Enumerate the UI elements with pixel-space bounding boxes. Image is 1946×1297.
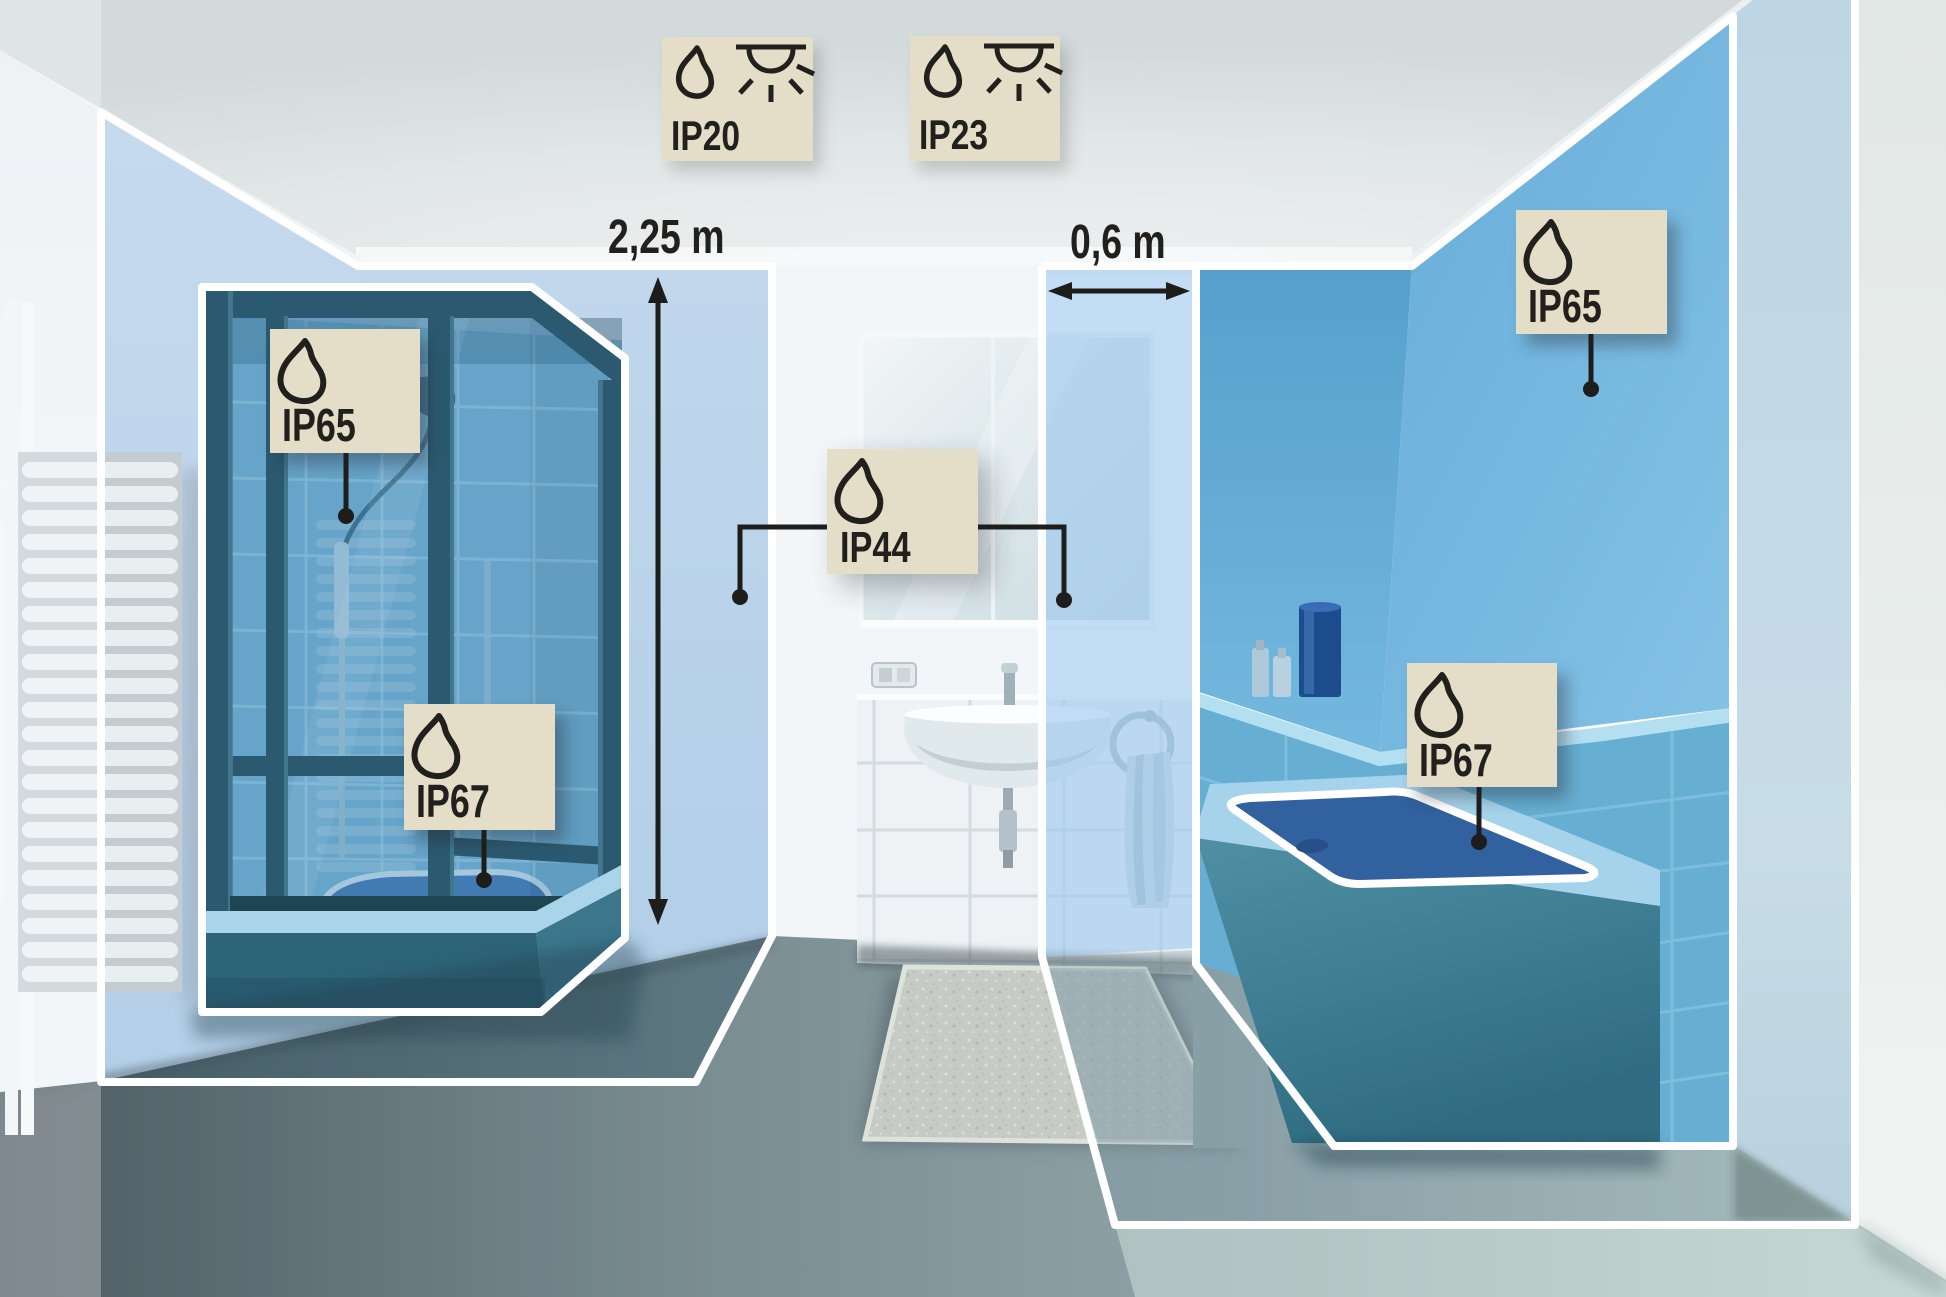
svg-text:IP65: IP65: [1528, 281, 1602, 332]
svg-text:IP67: IP67: [1419, 735, 1493, 786]
svg-text:IP67: IP67: [416, 776, 490, 827]
svg-text:2,25 m: 2,25 m: [608, 211, 725, 265]
svg-text:IP20: IP20: [671, 114, 740, 160]
svg-text:0,6 m: 0,6 m: [1070, 216, 1166, 270]
svg-text:IP65: IP65: [282, 400, 356, 451]
svg-text:IP23: IP23: [919, 113, 988, 159]
svg-text:IP44: IP44: [840, 523, 911, 572]
